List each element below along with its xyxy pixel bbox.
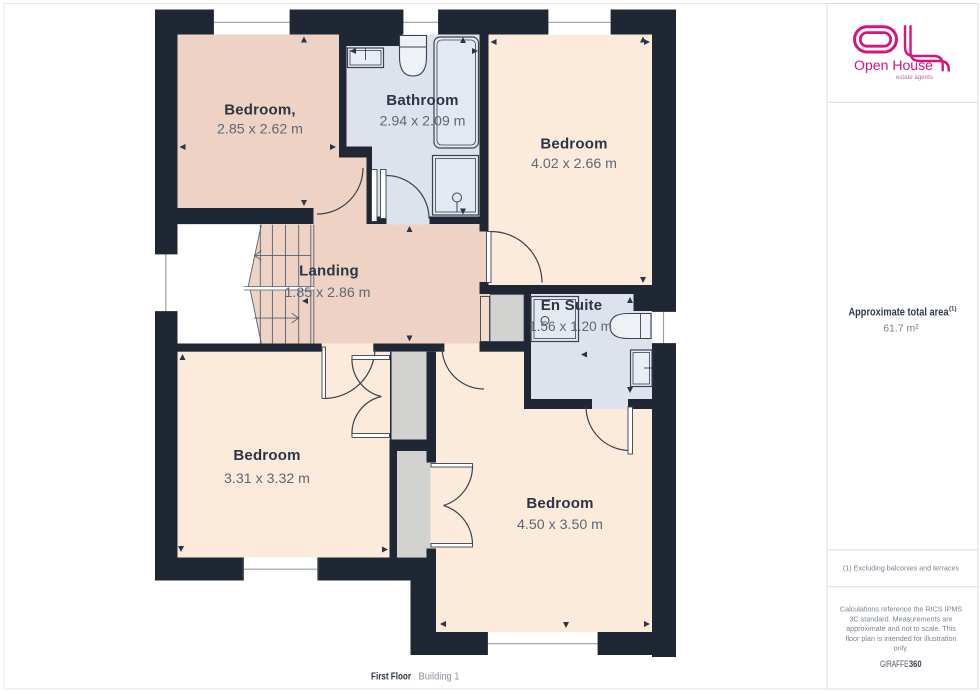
svg-text:3.31 x 3.32 m: 3.31 x 3.32 m (224, 471, 310, 487)
svg-text:61.7 m²: 61.7 m² (883, 323, 919, 335)
svg-text:Bedroom: Bedroom (540, 136, 607, 153)
svg-text:Building 1: Building 1 (419, 671, 460, 683)
svg-text:Landing: Landing (299, 263, 359, 280)
svg-text:Calculations reference the RIC: Calculations reference the RICS IPMS (840, 605, 962, 614)
svg-text:approximate and not to scale.: approximate and not to scale. This (846, 624, 956, 633)
svg-text:estate agents: estate agents (896, 74, 933, 81)
svg-text:2.94 x 2.09 m: 2.94 x 2.09 m (380, 114, 466, 130)
svg-text:En Suite: En Suite (541, 297, 603, 314)
svg-text:only.: only. (894, 644, 909, 653)
svg-text:Bedroom,: Bedroom, (224, 102, 296, 119)
svg-text:Approximate total area: Approximate total area (849, 307, 950, 319)
svg-text:1.56 x 1.20 m: 1.56 x 1.20 m (529, 319, 612, 335)
svg-text:Bathroom: Bathroom (386, 92, 458, 109)
svg-text:4.02 x 2.66 m: 4.02 x 2.66 m (531, 156, 617, 172)
svg-text:floor plan is intended for ill: floor plan is intended for illustration (845, 634, 956, 643)
svg-text:2.85 x 2.62 m: 2.85 x 2.62 m (217, 122, 303, 138)
svg-text:(1) Excluding balconies and te: (1) Excluding balconies and terraces (843, 564, 960, 573)
svg-text:3C standard. Measurements are: 3C standard. Measurements are (849, 614, 952, 623)
svg-text:First Floor: First Floor (371, 671, 411, 683)
svg-text:4.50 x 3.50 m: 4.50 x 3.50 m (517, 517, 603, 533)
svg-text:Bedroom: Bedroom (526, 495, 593, 512)
svg-text:GIRAFFE: GIRAFFE (880, 659, 909, 669)
svg-text:1.85 x 2.86 m: 1.85 x 2.86 m (285, 285, 371, 301)
svg-text:Open House: Open House (854, 58, 933, 73)
svg-text:Bedroom: Bedroom (233, 447, 300, 464)
svg-text:360: 360 (909, 659, 922, 669)
svg-text:(1): (1) (949, 306, 957, 313)
